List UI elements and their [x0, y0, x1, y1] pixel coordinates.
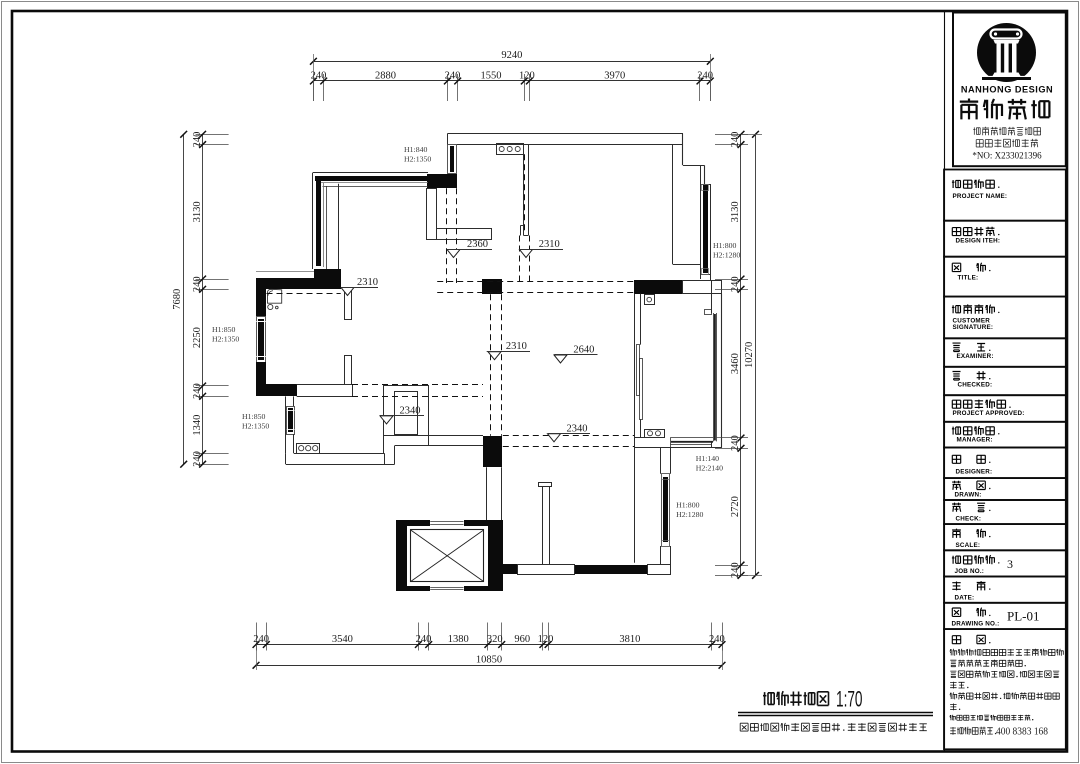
svg-text:PROJECT NAME:: PROJECT NAME: — [953, 193, 1008, 200]
svg-text:DRAWN:: DRAWN: — [955, 492, 982, 499]
svg-text:EXAMINER:: EXAMINER: — [957, 353, 994, 360]
svg-text:1340: 1340 — [192, 415, 203, 436]
svg-text:*NO: X233021396: *NO: X233021396 — [972, 151, 1042, 161]
svg-text:2340: 2340 — [566, 423, 587, 434]
svg-text:H1:140: H1:140 — [696, 454, 719, 463]
svg-text:PROJECT APPROVED:: PROJECT APPROVED: — [953, 410, 1025, 417]
svg-text:TITLE:: TITLE: — [958, 275, 979, 282]
svg-text:SCALE:: SCALE: — [956, 542, 981, 549]
svg-text:2640: 2640 — [573, 345, 594, 356]
svg-text:240: 240 — [311, 70, 327, 81]
svg-text:3810: 3810 — [619, 634, 640, 645]
svg-text:H1:840: H1:840 — [404, 145, 427, 154]
svg-text:SIGNATURE:: SIGNATURE: — [953, 324, 994, 331]
svg-text:240: 240 — [445, 70, 461, 81]
svg-text:NANHONG DESIGN: NANHONG DESIGN — [961, 85, 1053, 95]
svg-text:10270: 10270 — [744, 342, 755, 368]
svg-text:2310: 2310 — [357, 277, 378, 288]
svg-text:PL-01: PL-01 — [1007, 608, 1040, 623]
svg-text:240: 240 — [730, 435, 741, 451]
svg-text:2310: 2310 — [506, 341, 527, 352]
svg-text:400 8383 168: 400 8383 168 — [996, 727, 1048, 738]
svg-text:2720: 2720 — [730, 496, 741, 517]
svg-text:3460: 3460 — [730, 353, 741, 374]
svg-text:240: 240 — [192, 383, 203, 399]
svg-text:240: 240 — [416, 634, 432, 645]
svg-text:DATE:: DATE: — [955, 594, 975, 601]
svg-text:H1:800: H1:800 — [676, 501, 699, 510]
svg-text:3130: 3130 — [192, 201, 203, 222]
svg-text:240: 240 — [730, 132, 741, 148]
svg-text:2250: 2250 — [192, 327, 203, 348]
svg-text:3540: 3540 — [332, 634, 353, 645]
svg-text:120: 120 — [538, 634, 554, 645]
svg-text:240: 240 — [192, 132, 203, 148]
svg-text:MANAGER:: MANAGER: — [957, 437, 993, 444]
svg-text:H1:800: H1:800 — [713, 241, 736, 250]
svg-text:3970: 3970 — [604, 70, 625, 81]
svg-text:DESIGN ITEH:: DESIGN ITEH: — [956, 238, 1001, 245]
svg-text:240: 240 — [192, 276, 203, 292]
svg-text:10850: 10850 — [476, 655, 502, 666]
svg-text:120: 120 — [519, 70, 535, 81]
svg-text:H2:1350: H2:1350 — [404, 155, 431, 164]
svg-text:240: 240 — [709, 634, 725, 645]
svg-text:1:70: 1:70 — [836, 687, 863, 712]
svg-text:2360: 2360 — [467, 239, 488, 250]
svg-text:H1:850: H1:850 — [242, 412, 265, 421]
svg-text:2880: 2880 — [375, 70, 396, 81]
svg-text:H2:1350: H2:1350 — [242, 422, 269, 431]
svg-text:9240: 9240 — [501, 50, 522, 61]
svg-text:CHECKED:: CHECKED: — [958, 382, 993, 389]
svg-text:CHECK:: CHECK: — [956, 516, 982, 523]
svg-text:240: 240 — [730, 276, 741, 292]
svg-text:240: 240 — [253, 634, 269, 645]
svg-text:1380: 1380 — [448, 634, 469, 645]
svg-text:3130: 3130 — [730, 201, 741, 222]
svg-text:7680: 7680 — [172, 289, 183, 310]
svg-text:H2:1280: H2:1280 — [713, 251, 740, 260]
svg-text:H2:1280: H2:1280 — [676, 510, 703, 519]
svg-text:240: 240 — [192, 451, 203, 467]
svg-text:H2:2140: H2:2140 — [696, 464, 723, 473]
svg-text:320: 320 — [487, 634, 503, 645]
svg-text:2340: 2340 — [400, 405, 421, 416]
svg-text:H1:850: H1:850 — [212, 325, 235, 334]
svg-text:1550: 1550 — [480, 70, 501, 81]
svg-text:DESIGNER:: DESIGNER: — [956, 469, 993, 476]
svg-text:H2:1350: H2:1350 — [212, 335, 239, 344]
svg-text:2310: 2310 — [539, 239, 560, 250]
svg-text:960: 960 — [514, 634, 530, 645]
svg-text:240: 240 — [730, 562, 741, 578]
svg-text:3: 3 — [1007, 557, 1013, 571]
svg-text:DRAWING NO.:: DRAWING NO.: — [952, 621, 1000, 628]
svg-text:JOB NO.:: JOB NO.: — [955, 568, 985, 575]
